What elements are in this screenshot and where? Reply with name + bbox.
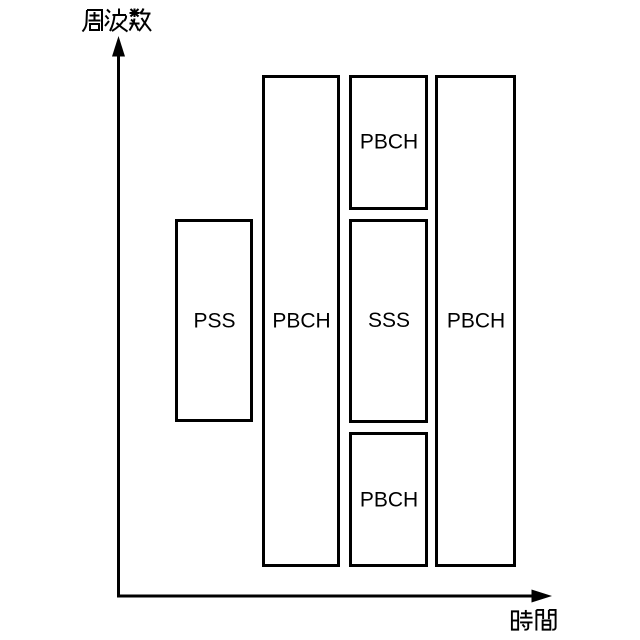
svg-text:PBCH: PBCH [272, 309, 330, 332]
svg-text:PBCH: PBCH [360, 131, 418, 154]
svg-text:PSS: PSS [193, 309, 235, 332]
svg-text:PBCH: PBCH [447, 309, 505, 332]
svg-text:PBCH: PBCH [360, 489, 418, 512]
svg-text:SSS: SSS [368, 309, 410, 332]
